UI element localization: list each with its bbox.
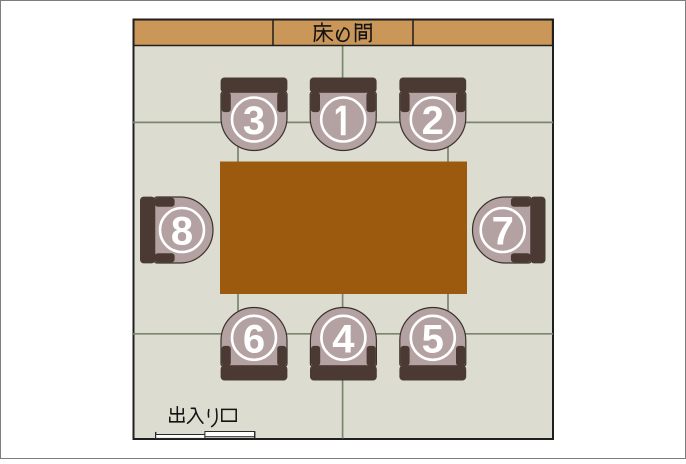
svg-text:4: 4: [332, 317, 355, 361]
svg-text:7: 7: [492, 210, 514, 254]
svg-text:5: 5: [422, 317, 444, 361]
svg-text:8: 8: [171, 210, 193, 254]
svg-text:6: 6: [243, 317, 265, 361]
svg-text:2: 2: [422, 99, 444, 143]
svg-text:3: 3: [243, 99, 265, 143]
